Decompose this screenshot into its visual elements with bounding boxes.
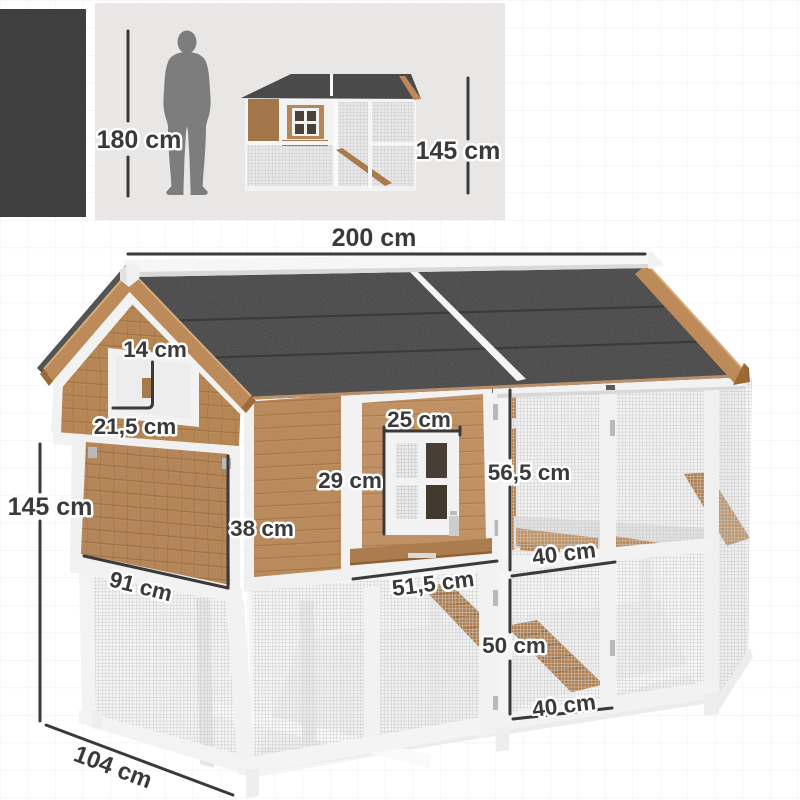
svg-text:145 cm: 145 cm [8, 493, 93, 521]
svg-text:180 cm: 180 cm [97, 126, 182, 154]
svg-text:14 cm: 14 cm [123, 337, 187, 362]
svg-text:50 cm: 50 cm [482, 633, 546, 658]
svg-text:29 cm: 29 cm [318, 468, 382, 493]
svg-text:38 cm: 38 cm [230, 516, 294, 541]
svg-text:56,5 cm: 56,5 cm [488, 460, 571, 485]
svg-text:25 cm: 25 cm [387, 407, 451, 432]
svg-text:200 cm: 200 cm [332, 224, 417, 252]
svg-text:145 cm: 145 cm [416, 137, 501, 165]
svg-text:21,5 cm: 21,5 cm [94, 414, 177, 439]
